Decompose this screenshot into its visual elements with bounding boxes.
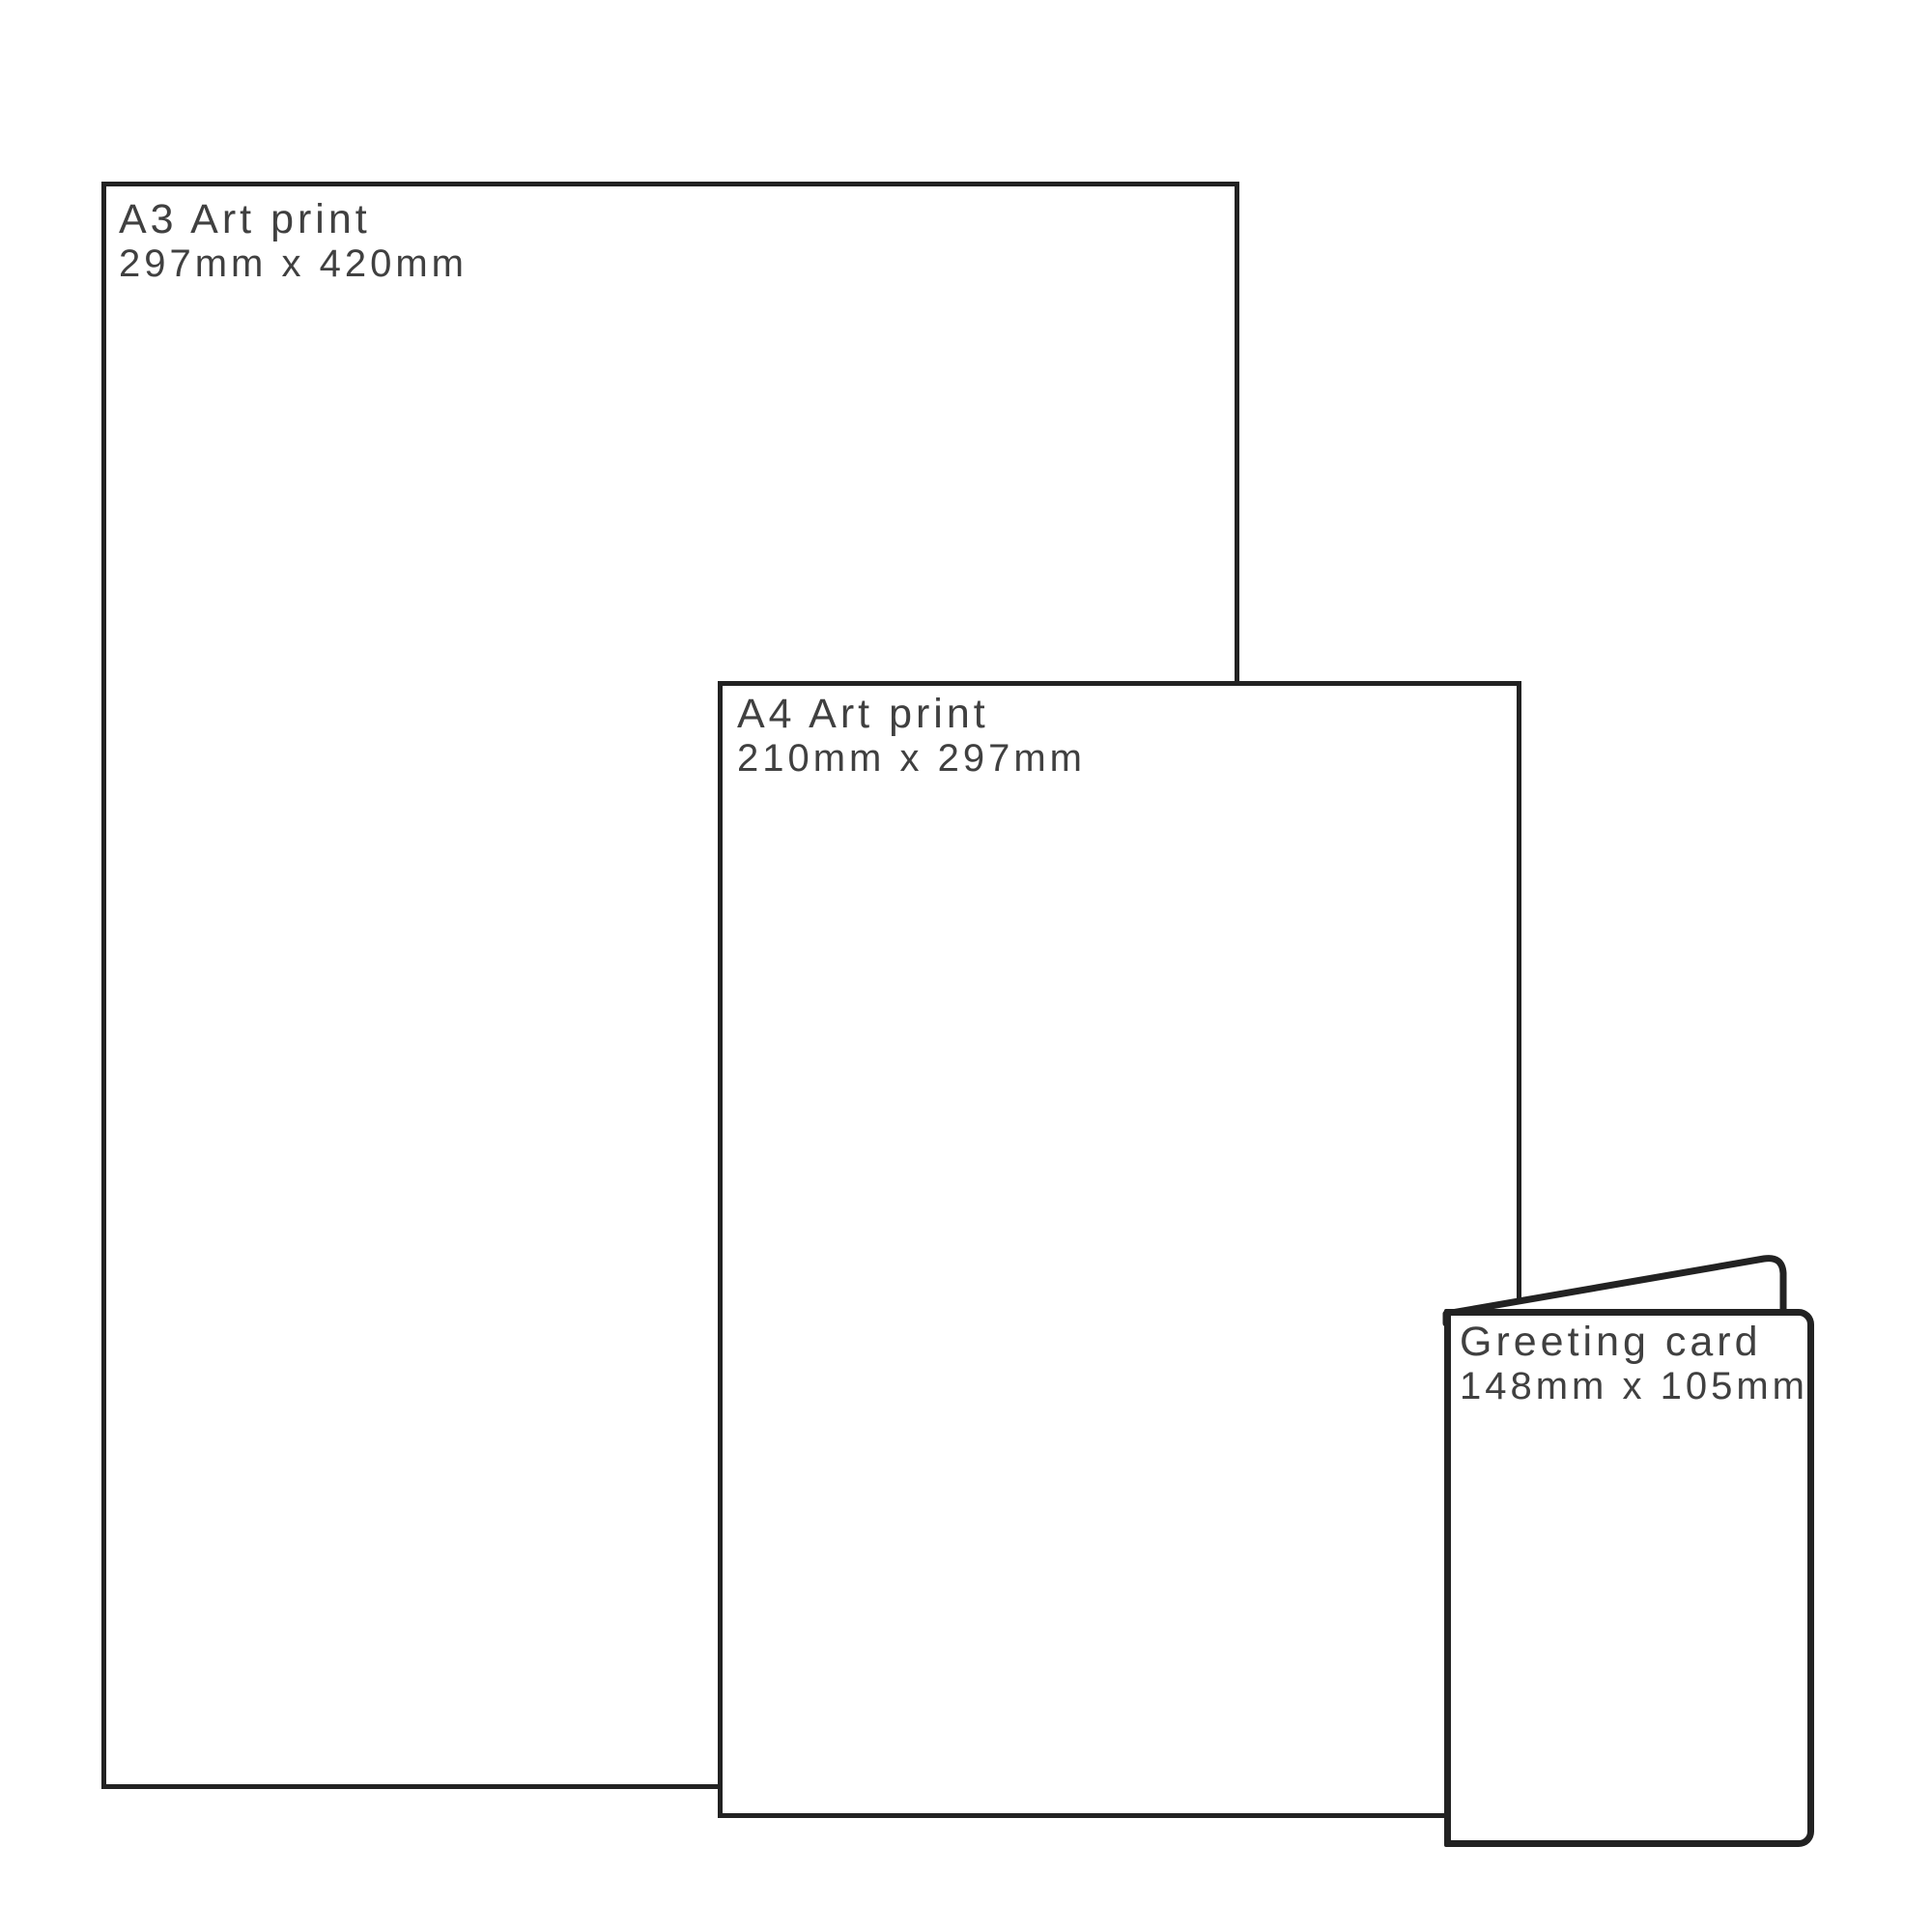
a3-print-title: A3 Art print: [119, 197, 468, 242]
a4-print-dimensions: 210mm x 297mm: [737, 737, 1086, 780]
a3-print-label: A3 Art print 297mm x 420mm: [119, 197, 468, 285]
size-comparison-diagram: A3 Art print 297mm x 420mm A4 Art print …: [0, 0, 1932, 1932]
greeting-card-title: Greeting card: [1460, 1320, 1808, 1365]
a4-print-title: A4 Art print: [737, 692, 1086, 737]
a4-print-outline: [718, 681, 1521, 1818]
greeting-card-label: Greeting card 148mm x 105mm: [1460, 1320, 1808, 1407]
greeting-card-dimensions: 148mm x 105mm: [1460, 1365, 1808, 1407]
a3-print-dimensions: 297mm x 420mm: [119, 242, 468, 285]
a4-print-label: A4 Art print 210mm x 297mm: [737, 692, 1086, 780]
